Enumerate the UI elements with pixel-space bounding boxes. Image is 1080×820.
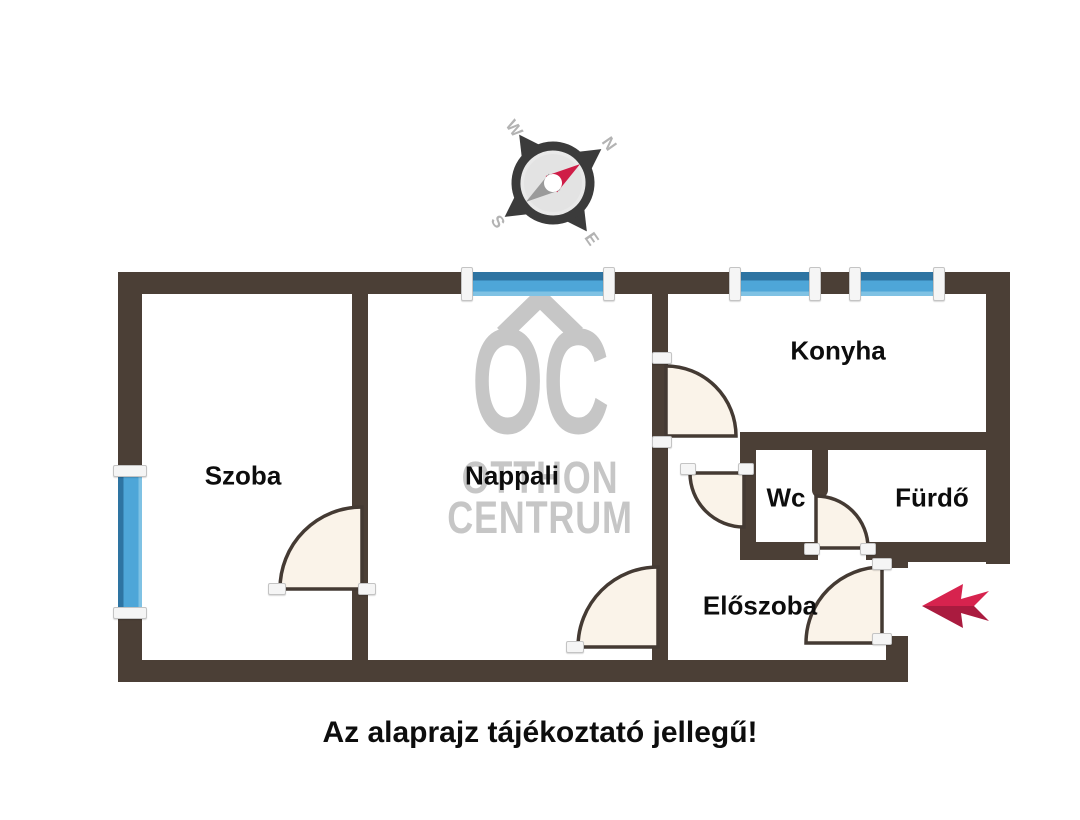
- szoba-door-swing: [280, 507, 362, 589]
- room-label-furdo: Fürdő: [895, 483, 969, 514]
- room-label-nappali: Nappali: [465, 461, 559, 492]
- room-label-eloszoba: Előszoba: [703, 591, 817, 622]
- konyha-door-swing: [666, 366, 736, 436]
- disclaimer-caption: Az alaprajz tájékoztató jellegű!: [0, 716, 1080, 750]
- compass-letter-e: E: [581, 229, 603, 249]
- frame-cap-12: [566, 641, 584, 653]
- frame-cap-17: [872, 558, 892, 570]
- frame-cap-0: [461, 267, 473, 301]
- entry-door-swing: [806, 567, 882, 643]
- frame-cap-1: [603, 267, 615, 301]
- frame-cap-5: [933, 267, 945, 301]
- nappali-door-swing: [578, 567, 658, 647]
- frame-cap-15: [804, 543, 820, 555]
- room-label-konyha: Konyha: [790, 336, 885, 367]
- compass-letter-n: N: [598, 133, 621, 154]
- compass-rose: N E S W: [478, 108, 628, 258]
- room-label-szoba: Szoba: [205, 461, 282, 492]
- frame-cap-4: [849, 267, 861, 301]
- entrance-arrow-icon: [922, 584, 989, 628]
- room-label-wc: Wc: [767, 483, 806, 514]
- frame-cap-6: [113, 465, 147, 477]
- frame-cap-11: [358, 583, 376, 595]
- frame-cap-7: [113, 607, 147, 619]
- frame-cap-3: [809, 267, 821, 301]
- compass-letter-s: S: [487, 212, 509, 232]
- frame-cap-18: [872, 633, 892, 645]
- frame-cap-14: [738, 463, 754, 475]
- frame-cap-10: [268, 583, 286, 595]
- frame-cap-8: [652, 352, 672, 364]
- floor-plan: OC OTTHON CENTRUM N E S W SzobaNappal: [0, 0, 1080, 820]
- wc-door-swing: [690, 473, 744, 527]
- furdo-door-swing: [816, 496, 868, 548]
- frame-cap-9: [652, 436, 672, 448]
- frame-cap-2: [729, 267, 741, 301]
- frame-cap-16: [860, 543, 876, 555]
- frame-cap-13: [680, 463, 696, 475]
